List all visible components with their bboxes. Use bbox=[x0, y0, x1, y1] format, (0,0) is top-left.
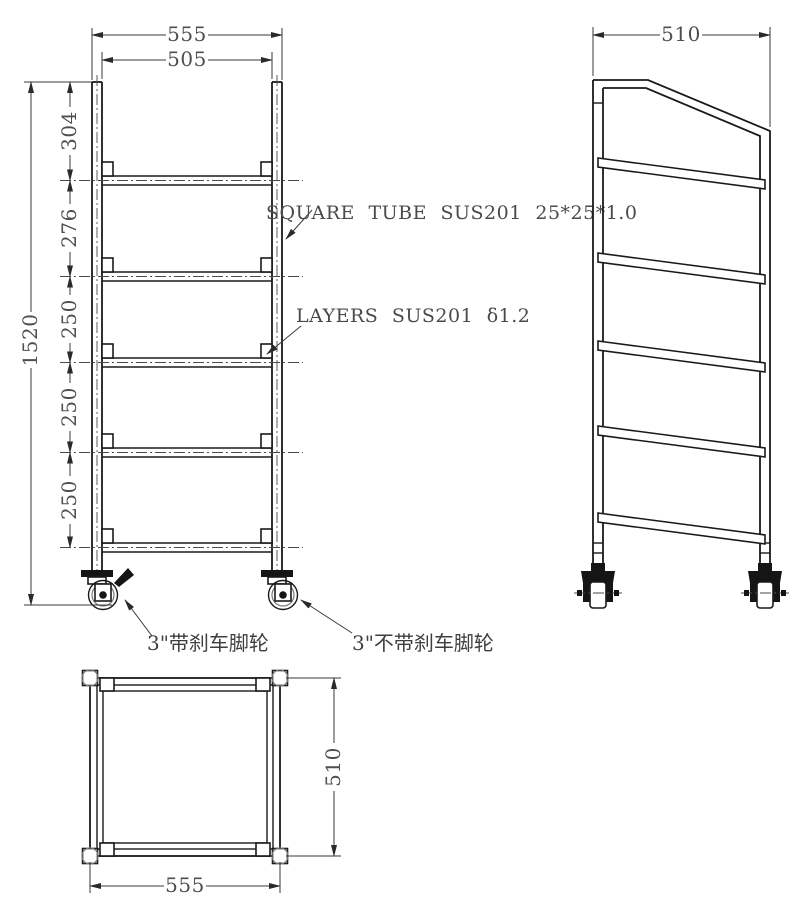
corner-tab bbox=[256, 678, 270, 691]
shelf-bracket bbox=[261, 162, 272, 176]
dim-label-seg-2: 276 bbox=[57, 208, 81, 248]
shelf-bracket bbox=[102, 162, 113, 176]
front-caster-left-brake bbox=[81, 568, 134, 610]
dim-label-seg-3: 250 bbox=[57, 299, 81, 339]
front-left-post bbox=[92, 75, 102, 574]
dim-label-seg-5: 250 bbox=[57, 480, 81, 520]
side-caster-right bbox=[741, 563, 789, 608]
dim-label-bottom-depth: 510 bbox=[321, 747, 345, 787]
shelf-bracket bbox=[261, 529, 272, 543]
note-layers-label: LAYERS SUS201 δ1.2 bbox=[296, 305, 530, 327]
front-shelf-5 bbox=[60, 529, 303, 552]
wheel-hub bbox=[99, 591, 107, 599]
note-square-tube: SQUARE TUBE SUS201 25*25*1.0 bbox=[266, 202, 637, 239]
dim-front-total-height: 1520 bbox=[18, 82, 112, 605]
dim-front-segments: 304 276 250 250 250 bbox=[57, 82, 81, 548]
front-caster-right bbox=[261, 570, 298, 610]
front-shelf-1 bbox=[60, 162, 303, 185]
bottom-frame bbox=[90, 678, 280, 856]
front-shelf-3 bbox=[60, 344, 303, 367]
note-layers: LAYERS SUS201 δ1.2 bbox=[267, 305, 530, 354]
front-view: 555 505 1520 bbox=[18, 22, 637, 655]
corner-tab bbox=[100, 678, 114, 691]
side-caster-left bbox=[574, 563, 622, 608]
dim-label-width-inner: 505 bbox=[167, 47, 207, 71]
shelf-bracket bbox=[261, 434, 272, 448]
front-shelf-2 bbox=[60, 258, 303, 281]
technical-drawing: 555 505 1520 bbox=[0, 0, 799, 902]
shelf-bracket bbox=[102, 344, 113, 358]
shelf-bracket bbox=[102, 258, 113, 272]
shelf-bracket bbox=[102, 434, 113, 448]
drawing-sheet: 555 505 1520 bbox=[0, 0, 799, 902]
dim-label-side-depth: 510 bbox=[661, 22, 701, 46]
dim-label-bottom-width: 555 bbox=[165, 873, 205, 897]
bottom-corner-posts bbox=[82, 670, 288, 864]
dim-side-depth: 510 bbox=[593, 22, 770, 127]
note-caster-plain-label: 3"不带刹车脚轮 bbox=[352, 631, 494, 655]
side-shelf-4 bbox=[598, 426, 765, 457]
note-caster-plain: 3"不带刹车脚轮 bbox=[301, 600, 494, 655]
corner-tab bbox=[256, 843, 270, 856]
dim-label-seg-4: 250 bbox=[57, 387, 81, 427]
shelf-bracket bbox=[102, 529, 113, 543]
front-shelf-4 bbox=[60, 434, 303, 457]
shelf-bracket bbox=[261, 258, 272, 272]
dim-label-seg-1: 304 bbox=[57, 111, 81, 151]
front-right-post bbox=[272, 75, 282, 574]
wheel-hub bbox=[279, 591, 287, 599]
corner-tab bbox=[100, 843, 114, 856]
dim-front-width-inner: 505 bbox=[102, 47, 272, 79]
bottom-view: 555 510 bbox=[82, 670, 345, 897]
side-shelf-5 bbox=[598, 513, 765, 544]
side-shelf-2 bbox=[598, 253, 765, 284]
note-square-tube-label: SQUARE TUBE SUS201 25*25*1.0 bbox=[266, 202, 637, 224]
note-caster-brake-label: 3"带刹车脚轮 bbox=[147, 631, 269, 655]
side-view: 510 bbox=[574, 22, 789, 608]
side-shelf-3 bbox=[598, 341, 765, 372]
note-caster-brake: 3"带刹车脚轮 bbox=[125, 600, 269, 655]
dim-label-total-height: 1520 bbox=[18, 314, 42, 367]
dim-bottom-depth: 510 bbox=[286, 678, 345, 856]
side-shelf-1 bbox=[598, 158, 765, 189]
side-frame bbox=[593, 80, 770, 563]
dim-bottom-width: 555 bbox=[90, 862, 280, 897]
brake-lever bbox=[114, 568, 134, 587]
dim-label-width-outer: 555 bbox=[167, 22, 207, 46]
